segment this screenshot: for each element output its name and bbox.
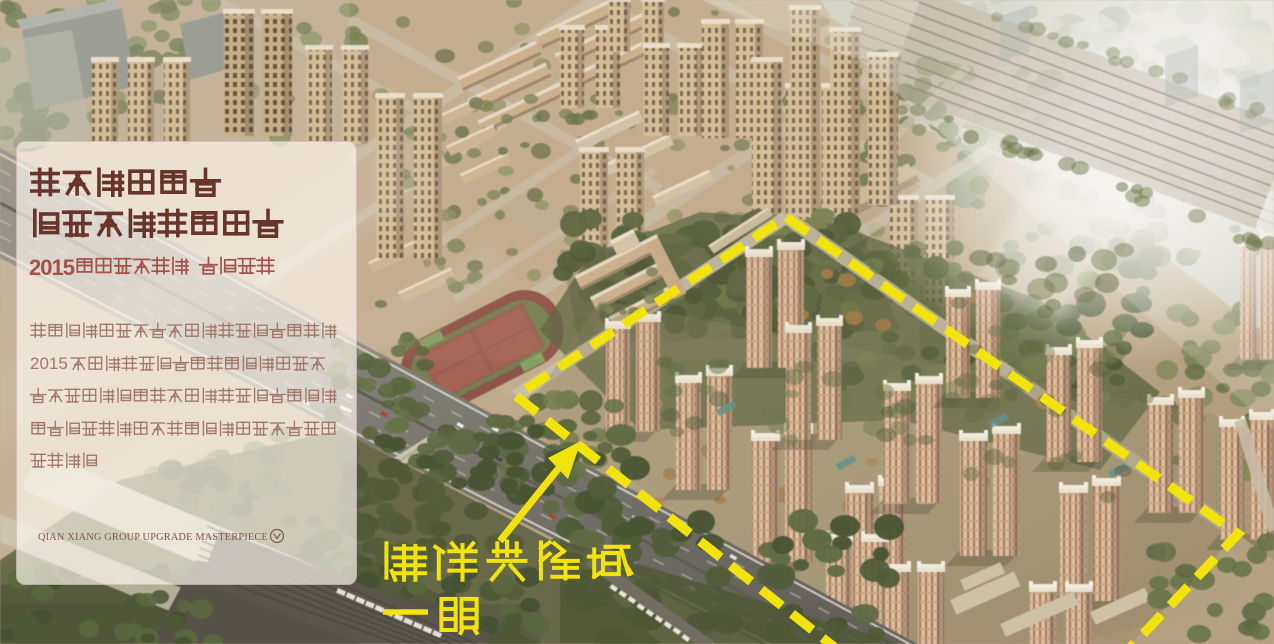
svg-text:QIAN XIANG GROUP UPGRADE MASTE: QIAN XIANG GROUP UPGRADE MASTERPIECE	[38, 532, 268, 543]
svg-text:2015: 2015	[30, 354, 68, 373]
svg-text:2015: 2015	[29, 255, 75, 280]
